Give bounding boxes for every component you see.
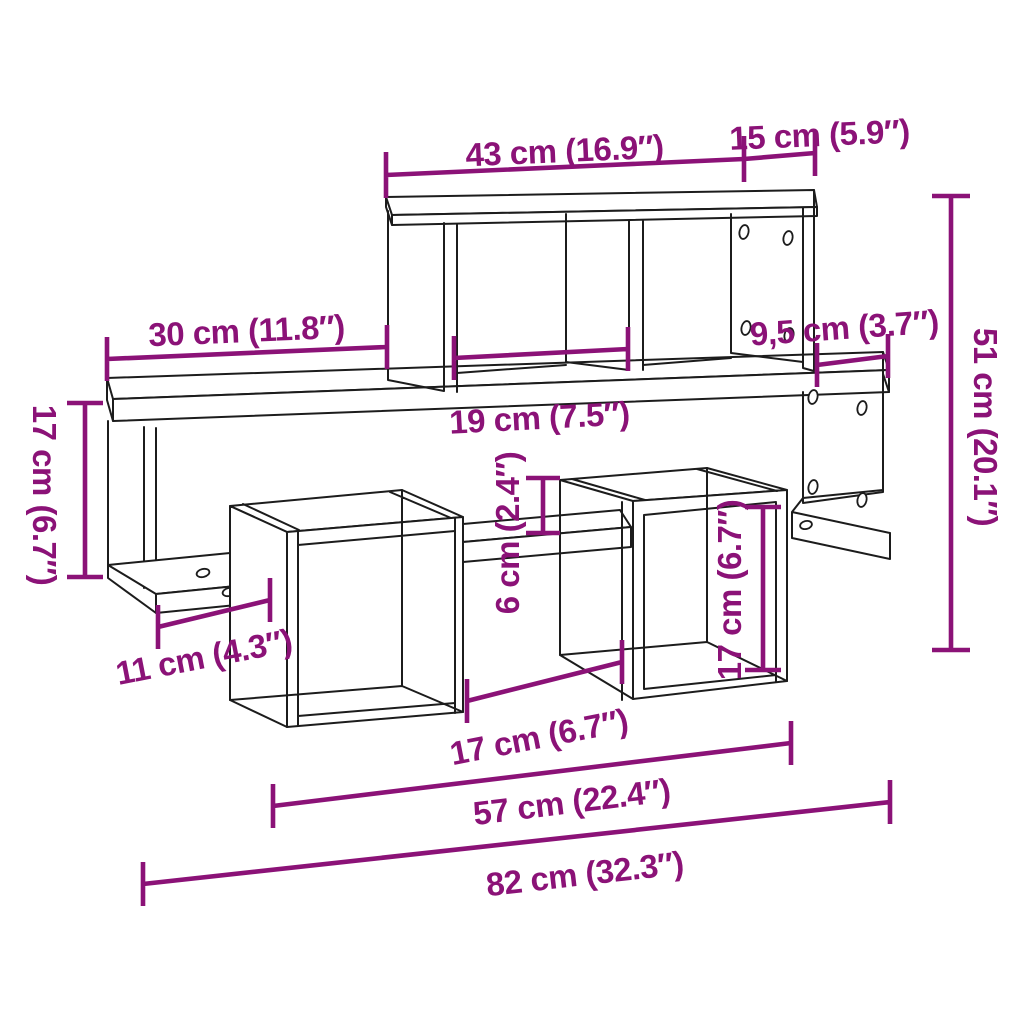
dim-shelf-gap-height: 6 cm (2.4″)	[489, 452, 560, 615]
dim-line	[932, 196, 970, 650]
dim-label-right-cube-height: 17 cm (6.7″)	[711, 500, 748, 680]
screw-hole	[738, 224, 750, 240]
right-cube	[560, 468, 787, 700]
dim-left-section-height: 17 cm (6.7″)	[26, 403, 103, 585]
dim-label-right-overhang: 9,5 cm (3.7″)	[749, 302, 940, 352]
top-unit-divider	[566, 214, 643, 370]
screw-hole	[807, 479, 819, 495]
right-bottom-shelf	[792, 490, 890, 559]
dim-label-top-shelf-width: 43 cm (16.9″)	[465, 128, 665, 174]
diagram-canvas: 43 cm (16.9″) 15 cm (5.9″) 30 cm (11.8″)…	[0, 0, 1024, 1024]
dim-cube-spacing: 17 cm (6.7″)	[447, 640, 631, 772]
top-unit-left-panel	[388, 211, 457, 392]
screw-hole	[782, 230, 794, 246]
dim-label-shelf-gap-height: 6 cm (2.4″)	[489, 452, 526, 615]
dim-top-right-compartment: 15 cm (5.9″)	[729, 112, 911, 176]
dim-label-cube-spacing: 17 cm (6.7″)	[447, 701, 631, 772]
left-cube	[230, 490, 463, 727]
wall-shelf-dimension-diagram: 43 cm (16.9″) 15 cm (5.9″) 30 cm (11.8″)…	[0, 0, 1024, 1024]
dim-top-shelf-width: 43 cm (16.9″)	[386, 128, 744, 198]
dim-total-height: 51 cm (20.1″)	[932, 196, 1004, 650]
dim-line	[67, 403, 103, 577]
screw-hole	[856, 400, 868, 416]
dim-label-total-width: 82 cm (32.3″)	[484, 844, 685, 903]
dim-label-left-overhang: 30 cm (11.8″)	[148, 308, 346, 354]
dimension-annotations: 43 cm (16.9″) 15 cm (5.9″) 30 cm (11.8″)…	[26, 112, 1004, 906]
top-shelf	[386, 190, 817, 225]
dim-label-top-right-compartment: 15 cm (5.9″)	[729, 112, 911, 157]
keyhole-slot	[799, 520, 813, 531]
dim-label-total-height: 51 cm (20.1″)	[967, 328, 1004, 526]
dim-label-left-section-height: 17 cm (6.7″)	[26, 405, 63, 585]
